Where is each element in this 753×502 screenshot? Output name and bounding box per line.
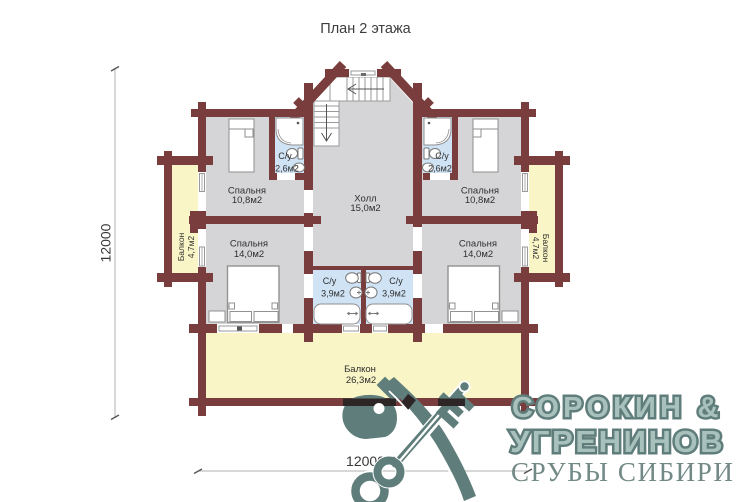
svg-text:УГРЕНИНОВ: УГРЕНИНОВ [510, 424, 725, 459]
svg-text:С/у: С/у [435, 151, 449, 161]
svg-text:2,6м2: 2,6м2 [275, 164, 299, 174]
svg-text:3,9м2: 3,9м2 [382, 289, 406, 299]
svg-text:Балкон: Балкон [541, 234, 551, 263]
svg-text:26,3м2: 26,3м2 [346, 375, 376, 386]
svg-text:10,8м2: 10,8м2 [232, 195, 262, 206]
svg-text:12000: 12000 [98, 223, 114, 262]
svg-text:14,0м2: 14,0м2 [463, 249, 493, 260]
svg-text:Балкон: Балкон [176, 232, 186, 261]
svg-text:Спальня: Спальня [230, 239, 268, 250]
svg-text:С/у: С/у [389, 276, 403, 286]
svg-text:3,9м2: 3,9м2 [321, 289, 345, 299]
svg-text:14,0м2: 14,0м2 [234, 249, 264, 260]
svg-text:2,6м2: 2,6м2 [428, 164, 452, 174]
svg-text:План 2 этажа: План 2 этажа [320, 21, 411, 37]
svg-text:С/у: С/у [323, 276, 337, 286]
svg-text:4,7м2: 4,7м2 [186, 236, 196, 259]
svg-text:Балкон: Балкон [344, 364, 376, 375]
svg-text:СОРОКИН &: СОРОКИН & [512, 392, 723, 424]
svg-text:10,8м2: 10,8м2 [465, 195, 495, 206]
svg-text:4,7м2: 4,7м2 [531, 237, 541, 260]
svg-text:15,0м2: 15,0м2 [350, 203, 380, 214]
svg-text:СРУБЫ СИБИРИ: СРУБЫ СИБИРИ [511, 457, 735, 487]
svg-text:С/у: С/у [278, 151, 292, 161]
svg-text:Спальня: Спальня [459, 239, 497, 250]
